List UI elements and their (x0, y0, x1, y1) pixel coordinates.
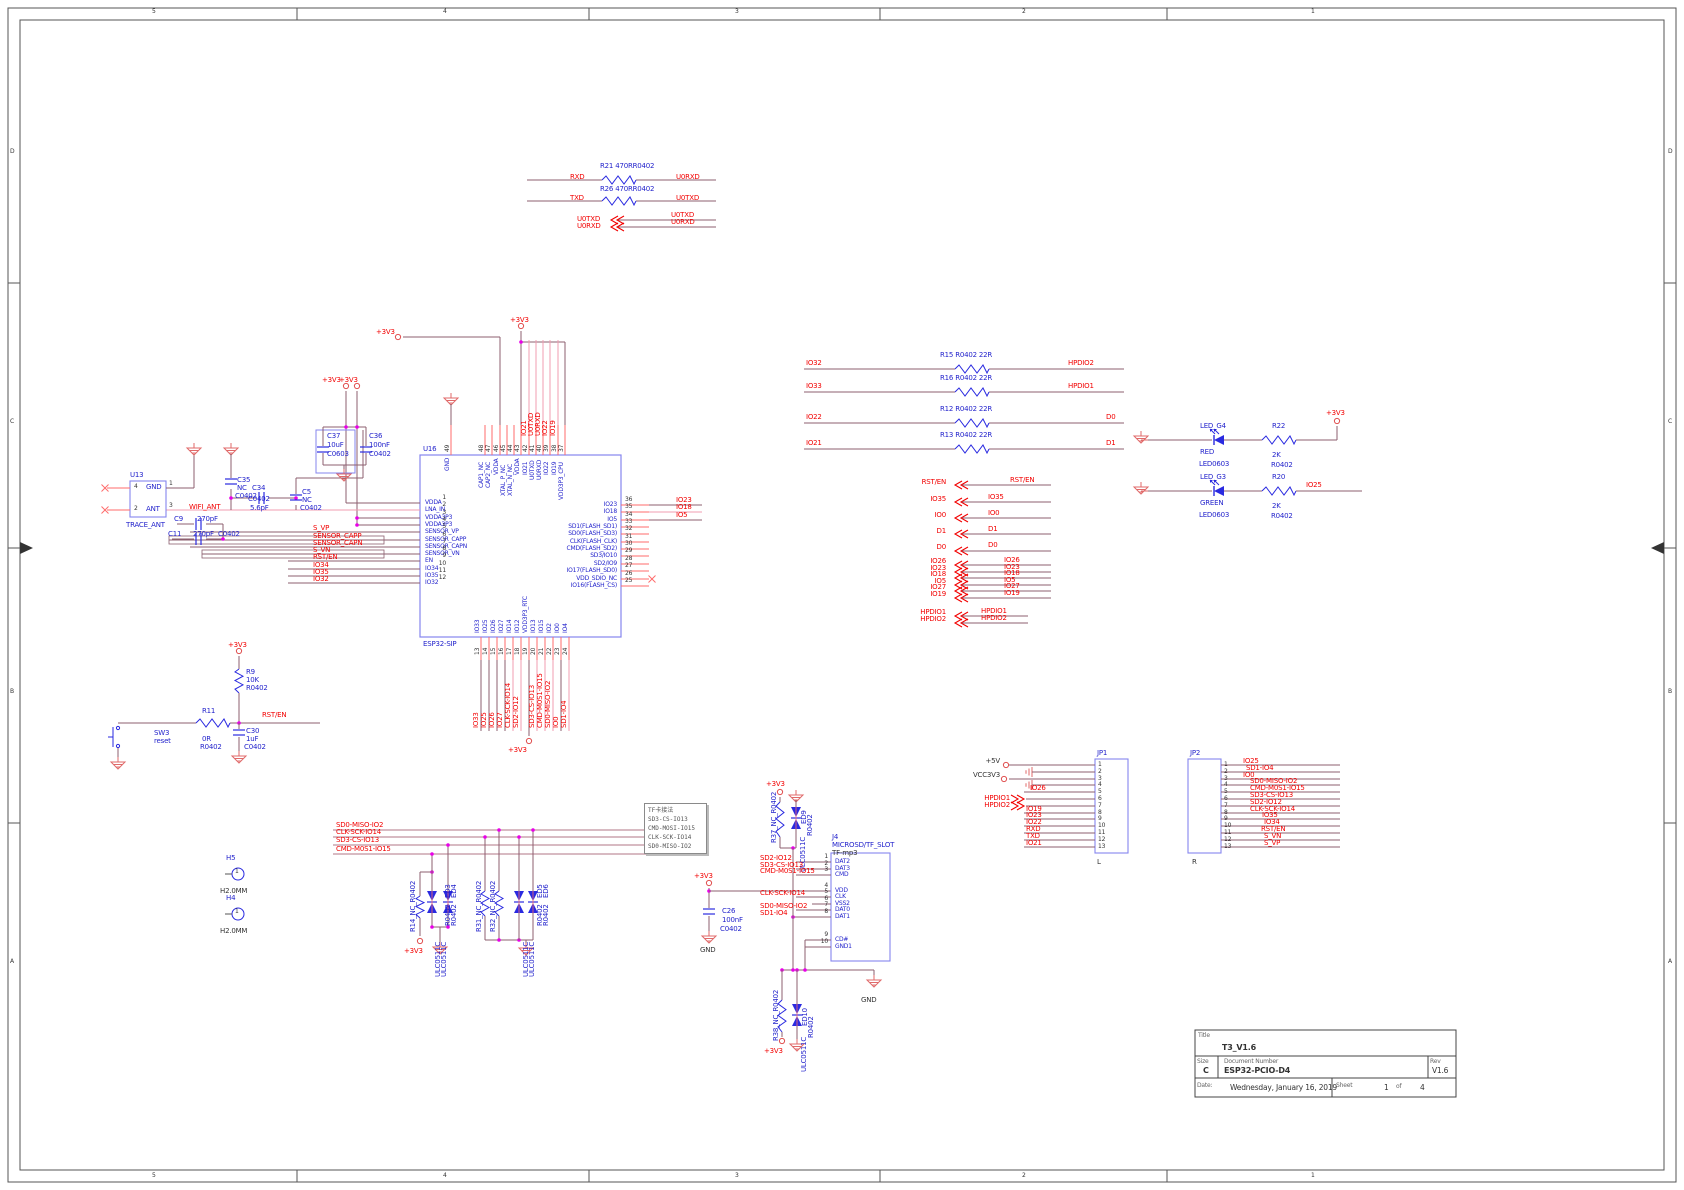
pin-name: IO26 (490, 620, 497, 633)
net-io18: IO18 (676, 503, 692, 511)
pwr-3v3: +3V3 (510, 316, 529, 324)
net-label: CLK-SCK-IO14 (760, 889, 805, 897)
net-io25: IO25 (1306, 481, 1322, 489)
net-cmd-m0s1-io15: CMD-M0S1-IO15 (336, 845, 391, 853)
pin-name: IO19 (551, 462, 558, 475)
pwr-3v3: +3V3 (1326, 409, 1345, 417)
frame-row: A (1668, 958, 1672, 965)
pin-number: 9 (442, 552, 446, 559)
c9-ref: C9 (174, 515, 183, 523)
net-sd2-io12: SD2-IO12 (512, 696, 520, 728)
c37-val: 10uF (327, 441, 344, 449)
c26-val: 100nF (722, 916, 743, 924)
c34-ref: C34 (252, 484, 265, 492)
ed10-part: ULC0511C (800, 1037, 808, 1072)
net-rst-en: RST/EN (262, 711, 286, 719)
r38-ref: R38_NC_R0402 (772, 990, 780, 1041)
frame-col: 4 (443, 8, 447, 15)
pin-number: 20 (530, 648, 537, 655)
pin-number: 38 (551, 445, 558, 452)
pin-number: 13 (1224, 843, 1231, 850)
pin-name: CMD (835, 871, 848, 878)
pin-name: VDD3P3_CPU (558, 462, 565, 500)
pin-name: IO34 (425, 565, 438, 572)
pin-number: 1 (824, 853, 828, 860)
pin-number: 31 (625, 533, 632, 540)
frame-row: A (10, 958, 14, 965)
led-g3-val: GREEN (1200, 499, 1223, 507)
net-d0: D0 (1106, 413, 1115, 421)
note-line: CLK-SCK-IO14 (648, 833, 706, 842)
net-sd3-cs-io13: SD3-CS-IO13 (336, 836, 379, 844)
pin-name: IO23 (604, 501, 617, 508)
pin-number: 10 (439, 560, 446, 567)
pin-number: 12 (439, 574, 446, 581)
pin-number: 15 (490, 648, 497, 655)
ed6-ref: ED6 (542, 884, 550, 898)
pin-number: 12 (1098, 836, 1105, 843)
title-block-field: Date: (1197, 1082, 1212, 1089)
net-sd0-miso-io2: SD0-MISO-IO2 (544, 681, 552, 728)
net-clk-sck-io14: CLK-SCK-IO14 (504, 683, 512, 728)
pin-name: SD0(FLASH_SD3) (568, 530, 617, 537)
pin-name: IO0 (554, 623, 561, 633)
pin-number: 42 (522, 445, 529, 452)
h5-ref: H5 (226, 854, 235, 862)
net-hpdio1: HPDIO1 (1068, 382, 1094, 390)
c34-val: 5.6pF (250, 504, 269, 512)
net-hpdio2: HPDIO2 (920, 615, 946, 623)
title-block-field: 1 (1384, 1083, 1389, 1092)
net-io0: IO0 (988, 509, 999, 517)
pin-name: CAP1_NC (478, 462, 485, 488)
pin-number: 18 (514, 648, 521, 655)
pin-number: 16 (498, 648, 505, 655)
sw3-val: reset (154, 737, 171, 745)
pwr-3v3: +3V3 (766, 780, 785, 788)
net-label: S_VP (1264, 839, 1280, 847)
pin-number: 25 (625, 577, 632, 584)
pin-number: 17 (506, 648, 513, 655)
title-block-field: Size (1197, 1058, 1209, 1065)
r26-ref: R26 470RR0402 (600, 185, 654, 193)
pin-name: U0TXD (529, 460, 536, 480)
u13-part: TRACE_ANT (126, 521, 165, 529)
pin-number: 19 (522, 648, 529, 655)
u13-gnd: GND (146, 483, 161, 491)
pin-number: 1 (1224, 761, 1228, 768)
net-label: VCC3V3 (973, 771, 1000, 779)
net-io33: IO33 (806, 382, 822, 390)
chip-ref: U16 (423, 445, 436, 453)
net-io22: IO22 (806, 413, 822, 421)
pin-name: XTAL_N_NC (507, 464, 514, 496)
pin-number: 33 (625, 518, 632, 525)
r14-ref: R14_NC_R0402 (409, 881, 417, 932)
r9-ref: R9 (246, 668, 255, 676)
pin-name: IO25 (482, 620, 489, 633)
c11-pkg: C0402 (218, 530, 240, 538)
c11-ref: C11 (168, 530, 181, 538)
pin-number: 11 (1098, 829, 1105, 836)
chip-part: ESP32-SIP (423, 640, 456, 648)
pin-number: 10 (821, 938, 828, 945)
pin-number: 4 (1098, 781, 1102, 788)
net-hpdio2: HPDIO2 (981, 614, 1007, 622)
ed10-pkg: R0402 (807, 1016, 815, 1038)
net-d1: D1 (937, 527, 946, 535)
r22-val: 2K (1272, 451, 1281, 459)
title-block-field: Sheet (1336, 1082, 1352, 1089)
sw3-ref: SW3 (154, 729, 169, 737)
title-block-field: Title (1198, 1032, 1210, 1039)
pin-name: DAT0 (835, 906, 850, 913)
r11-pkg: R0402 (200, 743, 222, 751)
net-rst-en: RST/EN (922, 478, 946, 486)
c26-ref: C26 (722, 907, 735, 915)
pin-name: IO16(FLASH_CS) (571, 582, 617, 589)
pin-name: CMD(FLASH_SD2) (567, 545, 617, 552)
pin-number: 6 (1224, 795, 1228, 802)
pin-number: 13 (1098, 843, 1105, 850)
pwr-3v3: +3V3 (339, 376, 358, 384)
net-io35: IO35 (988, 493, 1004, 501)
pin-name: GND (444, 458, 451, 471)
c5-val: NC (302, 496, 312, 504)
pin-name: U0RXD (536, 459, 543, 479)
frame-col: 2 (1022, 8, 1026, 15)
c35-val: NC (237, 484, 247, 492)
j4-name: MICROSD/TF_SLOT (832, 841, 894, 849)
net-rst-en: RST/EN (1010, 476, 1034, 484)
title-block-field: Document Number (1224, 1058, 1278, 1065)
schematic-page: R21 470RR0402RXDU0RXDR26 470RR0402TXDU0T… (0, 0, 1684, 1190)
pin-name: CLK(FLASH_CLK) (570, 538, 617, 545)
pwr-3v3: +3V3 (764, 1047, 783, 1055)
pin-name: SD2/IO9 (594, 560, 617, 567)
r20-ref: R20 (1272, 473, 1285, 481)
pwr-3v3: +3V3 (694, 872, 713, 880)
pin-name: IO35 (425, 572, 438, 579)
title-block-field: C (1203, 1066, 1209, 1075)
c9-val: 270pF (197, 515, 218, 523)
r31-ref: R31_NC_R0402 (475, 881, 483, 932)
c30-ref: C30 (246, 727, 259, 735)
title-block-field: Wednesday, January 16, 2019 (1230, 1083, 1337, 1092)
jp2-tag: R (1192, 858, 1197, 866)
pin-number: 6 (1098, 795, 1102, 802)
pin-number: 3 (824, 866, 828, 873)
pin-number: 5 (1224, 788, 1228, 795)
ed4-ref: ED4 (450, 884, 458, 898)
net-clk-sck-io14: CLK-SCK-IO14 (336, 828, 381, 836)
r22-ref: R22 (1272, 422, 1285, 430)
net-rst-en: RST/EN (313, 553, 337, 561)
jp1-tag: L (1097, 858, 1101, 866)
frame-col: 1 (1311, 1172, 1315, 1179)
net-label: CMD-M0S1-IO15 (760, 867, 815, 875)
title-block-field: Rev (1430, 1058, 1441, 1065)
pin-number: 37 (558, 445, 565, 452)
pin-name: VDD3P3_RTC (522, 596, 529, 633)
pin-name: IO12 (514, 620, 521, 633)
net-io26: IO26 (488, 712, 496, 728)
c34-pkg: C0402 (248, 495, 270, 503)
pin-name: IO22 (543, 462, 550, 475)
pwr-3v3: +3V3 (508, 746, 527, 754)
pwr-3v3: +3V3 (228, 641, 247, 649)
frame-row: D (10, 148, 14, 155)
pin-name: DAT2 (835, 858, 850, 865)
c30-val: 1uF (246, 735, 258, 743)
net-io25: IO25 (480, 712, 488, 728)
labels-layer: R21 470RR0402RXDU0RXDR26 470RR0402TXDU0T… (0, 0, 1684, 1190)
r15-ref: R15 R0402 22R (940, 351, 992, 359)
pin-number: 32 (625, 525, 632, 532)
frame-col: 1 (1311, 8, 1315, 15)
pin-name: SD1(FLASH_SD1) (568, 523, 617, 530)
pin-name: IO2 (546, 623, 553, 633)
net-io32: IO32 (806, 359, 822, 367)
pin-number: 4 (1224, 781, 1228, 788)
jp1-ref: JP1 (1097, 749, 1107, 757)
frame-row: B (1668, 688, 1672, 695)
net-label: IO21 (1026, 839, 1042, 847)
h4-ref: H4 (226, 894, 235, 902)
ed4-part: ULC0511C (440, 942, 448, 977)
frame-row: C (1668, 418, 1672, 425)
r22-pkg: R0402 (1271, 461, 1293, 469)
net-u0rxd: U0RXD (676, 173, 700, 181)
r20-val: 2K (1272, 502, 1281, 510)
led-g3-pkg: LED0603 (1199, 511, 1229, 519)
j4-sub: TF-mp3 (832, 849, 857, 857)
r9-pkg: R0402 (246, 684, 268, 692)
pin-number: 41 (529, 445, 536, 452)
pin-number: 45 (500, 445, 507, 452)
pin-number: 23 (554, 648, 561, 655)
net-io0: IO0 (935, 511, 946, 519)
net-d1: D1 (1106, 439, 1115, 447)
pin-number: 27 (625, 562, 632, 569)
pin-number: 9 (824, 931, 828, 938)
net-txd: TXD (570, 194, 584, 202)
pin-name: VDDA (514, 459, 521, 476)
pin-name: CAP2_NC (485, 462, 492, 488)
led-g4-pkg: LED0603 (1199, 460, 1229, 468)
pin-name: DAT1 (835, 913, 850, 920)
pin-name: VDDA (493, 459, 500, 476)
frame-row: C (10, 418, 14, 425)
net-io33: IO33 (472, 712, 480, 728)
net-io0: IO0 (552, 717, 560, 728)
pin-name: VDD_SDIO_NC (576, 575, 617, 582)
u13-ref: U13 (130, 471, 143, 479)
pwr-3v3: +3V3 (404, 947, 423, 955)
title-block-field: V1.6 (1432, 1066, 1448, 1075)
pin-name: IO4 (562, 623, 569, 633)
note-line: TF卡接法 (648, 806, 706, 815)
r12-ref: R12 R0402 22R (940, 405, 992, 413)
title-block-field: ESP32-PCIO-D4 (1224, 1066, 1290, 1075)
net-cmd-m0s1-io15: CMD-M0S1-IO15 (536, 673, 544, 728)
note-line: SD0-MISO-IO2 (648, 842, 706, 851)
pwr-3v3: +3V3 (322, 376, 341, 384)
pin-number: 22 (546, 648, 553, 655)
pwr-3v3: +3V3 (376, 328, 395, 336)
net-d0: D0 (937, 543, 946, 551)
pin-number: 36 (625, 496, 632, 503)
frame-row: D (1668, 148, 1672, 155)
note-line: SD3-CS-IO13 (648, 815, 706, 824)
bus-u0rxd: U0RXD (577, 222, 601, 230)
pin-number: 11 (439, 567, 446, 574)
frame-col: 5 (152, 1172, 156, 1179)
gnd-label: GND (861, 996, 876, 1004)
c36-ref: C36 (369, 432, 382, 440)
net-label: +5V (985, 757, 1000, 765)
net-io5: IO5 (676, 511, 687, 519)
pin-name: IO18 (604, 508, 617, 515)
pin-number: 7 (1098, 802, 1102, 809)
pin-name: XTAL_P_NC (500, 465, 507, 496)
pin-number: 2 (1224, 768, 1228, 775)
pin-name: CLK (835, 893, 846, 900)
pin-number: 26 (625, 570, 632, 577)
pin-name: IO27 (498, 620, 505, 633)
pin-number: 30 (625, 540, 632, 547)
pin-number: 48 (478, 445, 485, 452)
bus-u0rxd: U0RXD (671, 218, 695, 226)
pin-name: VDDA3P3 (425, 521, 452, 528)
led-g3-ref: LED_G3 (1200, 473, 1226, 481)
pin-number: 47 (485, 445, 492, 452)
pin-number: 5 (1098, 788, 1102, 795)
pin-number: 35 (625, 503, 632, 510)
pin-number: 12 (1224, 836, 1231, 843)
c5-pkg: C0402 (300, 504, 322, 512)
r13-ref: R13 R0402 22R (940, 431, 992, 439)
frame-col: 5 (152, 8, 156, 15)
frame-col: 2 (1022, 1172, 1026, 1179)
c11-val: 270pF (193, 530, 214, 538)
gnd-label: GND (700, 946, 715, 954)
net-io19: IO19 (549, 420, 557, 436)
net-hpdio2: HPDIO2 (1068, 359, 1094, 367)
pin-number: 21 (538, 648, 545, 655)
pin-name: IO33 (474, 620, 481, 633)
u13-pin4: 4 (134, 483, 138, 490)
title-block-field: 4 (1420, 1083, 1425, 1092)
r11-val: 0R (202, 735, 211, 743)
c37-ref: C37 (327, 432, 340, 440)
pin-name: VDDA (425, 499, 442, 506)
u13-ant: ANT (146, 505, 160, 513)
frame-col: 3 (735, 8, 739, 15)
pin-number: 49 (444, 445, 451, 452)
net-io21: IO21 (806, 439, 822, 447)
pin-name: EN (425, 557, 433, 564)
title-block-field: T3_V1.6 (1222, 1043, 1256, 1052)
note-line: CMD-MOSI-IO15 (648, 824, 706, 833)
h4-pin: 1 (235, 908, 239, 915)
u13-pin2: 2 (134, 505, 138, 512)
pin-number: 34 (625, 511, 632, 518)
pin-name: IO17(FLASH_SD0) (567, 567, 617, 574)
pin-name: IO32 (425, 579, 438, 586)
frame-col: 3 (735, 1172, 739, 1179)
jp2-ref: JP2 (1190, 749, 1200, 757)
ed6-part: ULC0511C (528, 942, 536, 977)
net-io19: IO19 (1004, 589, 1020, 597)
net-d0: D0 (988, 541, 997, 549)
net-label: IO26 (1030, 784, 1046, 792)
pin-number: 5 (824, 888, 828, 895)
pin-number: 10 (1224, 822, 1231, 829)
pin-name: IO13 (530, 620, 537, 633)
r32-ref: R32_NC_R0402 (489, 881, 497, 932)
ed6-pkg: R0402 (542, 904, 550, 926)
c35-ref: C35 (237, 476, 250, 484)
c36-val: 100nF (369, 441, 390, 449)
frame-row: B (10, 688, 14, 695)
pin-name: IO14 (506, 620, 513, 633)
pin-number: 1 (1098, 761, 1102, 768)
pin-number: 13 (474, 648, 481, 655)
tf-note-box: TF卡接法 SD3-CS-IO13 CMD-MOSI-IO15 CLK-SCK-… (644, 803, 707, 854)
pin-number: 2 (1098, 768, 1102, 775)
pin-number: 46 (493, 445, 500, 452)
c36-pkg: C0402 (369, 450, 391, 458)
r9-val: 10K (246, 676, 259, 684)
pin-name: IO15 (538, 620, 545, 633)
pin-number: 7 (1224, 802, 1228, 809)
pin-name: VDDA3P3 (425, 514, 452, 521)
net-sd1-io4: SD1-IO4 (560, 701, 568, 728)
net-wifi-ant: WIFI_ANT (189, 503, 220, 511)
pin-number: 11 (1224, 829, 1231, 836)
pin-number: 40 (536, 445, 543, 452)
pin-number: 24 (562, 648, 569, 655)
pin-name: GND1 (835, 943, 852, 950)
h5-pin: 1 (235, 868, 239, 875)
pin-number: 7 (824, 901, 828, 908)
c5-ref: C5 (302, 488, 311, 496)
led-g4-val: RED (1200, 448, 1214, 456)
net-label: HPDIO2 (984, 801, 1010, 809)
r20-pkg: R0402 (1271, 512, 1293, 520)
ed9-pkg: R0402 (806, 814, 814, 836)
pin-name: SD3/IO10 (590, 552, 617, 559)
net-rxd: RXD (570, 173, 584, 181)
r37-ref: R37_NC_R0402 (770, 792, 778, 843)
h4-val: H2.0MM (220, 927, 247, 935)
u13-pin1: 1 (169, 480, 173, 487)
pin-name: CD# (835, 936, 848, 943)
r21-ref: R21 470RR0402 (600, 162, 654, 170)
u13-pin3: 3 (169, 502, 173, 509)
frame-col: 4 (443, 1172, 447, 1179)
net-sd3-cs-io13: SD3-CS-IO13 (528, 685, 536, 728)
pin-name: IO5 (607, 516, 617, 523)
net-io27: IO27 (496, 712, 504, 728)
net-d1: D1 (988, 525, 997, 533)
c37-pkg: C0603 (327, 450, 349, 458)
pin-number: 8 (824, 908, 828, 915)
net-io32: IO32 (313, 575, 329, 583)
net-label: SD1-IO4 (760, 909, 787, 917)
pin-number: 28 (625, 555, 632, 562)
